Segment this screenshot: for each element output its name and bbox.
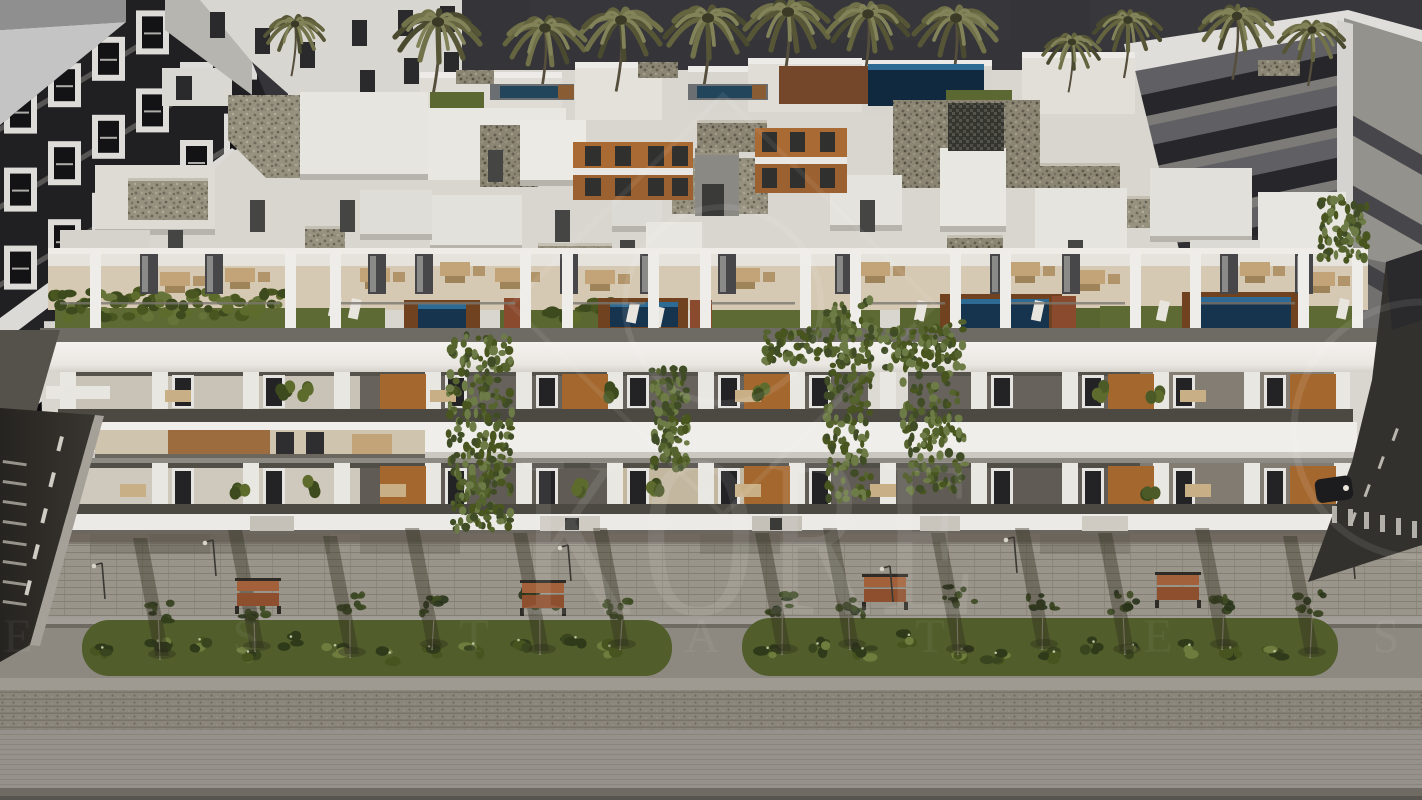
svg-text:E: E xyxy=(1143,610,1172,663)
svg-text:T: T xyxy=(459,610,488,663)
svg-text:S: S xyxy=(233,610,260,663)
svg-text:S: S xyxy=(1373,610,1400,663)
svg-text:T: T xyxy=(915,610,944,663)
svg-text:E: E xyxy=(3,610,32,663)
svg-text:A: A xyxy=(685,610,720,663)
